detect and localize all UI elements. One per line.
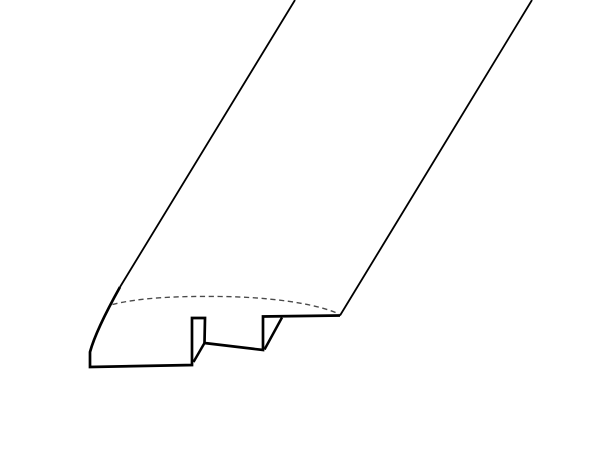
molding-profile-diagram	[0, 0, 600, 461]
groove-left-wall-near-edge	[194, 343, 205, 362]
hidden-top-contour-edge	[113, 296, 340, 314]
profile-outline	[90, 287, 340, 367]
step-near-edge	[265, 318, 283, 350]
left-long-edge	[120, 0, 295, 287]
drawing-canvas	[0, 0, 600, 461]
right-long-edge	[340, 0, 532, 316]
